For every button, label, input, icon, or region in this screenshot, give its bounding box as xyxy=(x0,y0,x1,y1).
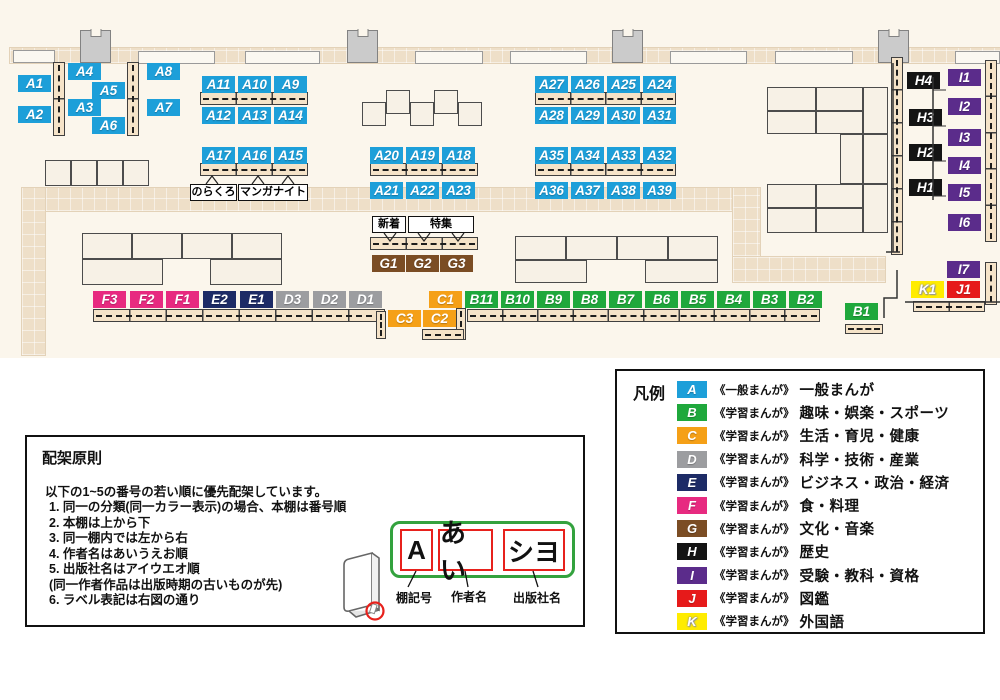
section-label-A23: A23 xyxy=(442,182,475,199)
legend-category: 歴史 xyxy=(800,541,830,562)
legend-category: 受験・教科・資格 xyxy=(800,565,920,586)
section-label-A37: A37 xyxy=(571,182,604,199)
wall-shelf xyxy=(415,51,483,64)
reading-table xyxy=(97,160,123,186)
shelf-code-caption: 棚記号 xyxy=(396,589,432,606)
section-label-D1: D1 xyxy=(349,291,382,308)
section-label-D3: D3 xyxy=(276,291,309,308)
reading-table xyxy=(132,233,182,259)
bookshelf xyxy=(376,311,386,339)
bookshelf xyxy=(535,92,676,105)
legend-row-F: F《学習まんが》食・料理 xyxy=(677,494,950,517)
section-label-A14: A14 xyxy=(274,107,307,124)
section-label-B10: B10 xyxy=(501,291,534,308)
reading-table xyxy=(767,87,816,111)
legend-row-C: C《学習まんが》生活・育児・健康 xyxy=(677,424,950,447)
principle-item: 5. 出版社名はアイウエオ順 (同一作者作品は出版時期の古いものが先) xyxy=(49,562,346,593)
legend-category: 文化・音楽 xyxy=(800,518,875,539)
callout-label: マンガナイト xyxy=(238,184,308,201)
section-label-B2: B2 xyxy=(789,291,822,308)
reading-table xyxy=(434,90,458,114)
label-shelf-code-box: A xyxy=(400,529,433,571)
section-label-C1: C1 xyxy=(429,291,462,308)
legend-row-G: G《学習まんが》文化・音楽 xyxy=(677,517,950,540)
section-label-A15: A15 xyxy=(274,147,307,164)
reading-table xyxy=(182,233,232,259)
reading-table xyxy=(816,111,863,134)
section-label-H2: H2 xyxy=(909,144,942,161)
reading-table xyxy=(668,236,718,260)
walkway xyxy=(733,257,885,282)
bookshelf xyxy=(200,163,308,176)
reading-table xyxy=(362,102,386,126)
reading-table xyxy=(863,134,888,184)
legend-chip-J: J xyxy=(677,590,707,607)
pillar xyxy=(612,30,643,63)
label-publisher-box: シヨ xyxy=(503,529,565,571)
manga-floor-map-page: A1A2A4A5A3A6A8A7A11A10A9A12A13A14A17A16A… xyxy=(0,0,1000,700)
principles-title: 配架原則 xyxy=(42,447,102,468)
section-label-F2: F2 xyxy=(130,291,163,308)
section-label-I7: I7 xyxy=(947,261,980,278)
section-label-A9: A9 xyxy=(274,76,307,93)
legend-chip-I: I xyxy=(677,567,707,584)
floor-map: A1A2A4A5A3A6A8A7A11A10A9A12A13A14A17A16A… xyxy=(0,0,1000,360)
section-label-A17: A17 xyxy=(202,147,235,164)
legend-rows: A《一般まんが》一般まんがB《学習まんが》趣味・娯楽・スポーツC《学習まんが》生… xyxy=(677,378,950,633)
section-label-A38: A38 xyxy=(607,182,640,199)
wall-shelf xyxy=(775,51,853,64)
reading-table xyxy=(617,236,668,260)
section-label-B5: B5 xyxy=(681,291,714,308)
section-label-A6: A6 xyxy=(92,117,125,134)
section-label-G3: G3 xyxy=(440,255,473,272)
legend-category: 図鑑 xyxy=(800,588,830,609)
section-label-A7: A7 xyxy=(147,99,180,116)
principle-item: 2. 本棚は上から下 xyxy=(49,516,346,532)
section-label-A19: A19 xyxy=(406,147,439,164)
section-label-B1: B1 xyxy=(845,303,878,320)
legend-prefix: 《一般まんが》 xyxy=(714,382,795,398)
section-label-H1: H1 xyxy=(909,179,942,196)
bookshelf xyxy=(535,163,676,176)
section-label-A1: A1 xyxy=(18,75,51,92)
section-label-A25: A25 xyxy=(607,76,640,93)
wall-shelf xyxy=(670,51,747,64)
section-label-A16: A16 xyxy=(238,147,271,164)
section-label-I1: I1 xyxy=(948,69,981,86)
principle-item: 4. 作者名はあいうえお順 xyxy=(49,547,346,563)
section-label-B3: B3 xyxy=(753,291,786,308)
legend-prefix: 《学習まんが》 xyxy=(714,521,795,537)
section-label-A24: A24 xyxy=(643,76,676,93)
section-label-A32: A32 xyxy=(643,147,676,164)
reading-table xyxy=(82,233,132,259)
legend-row-B: B《学習まんが》趣味・娯楽・スポーツ xyxy=(677,401,950,424)
bookshelf xyxy=(93,309,385,322)
bookshelf xyxy=(200,92,308,105)
legend-prefix: 《学習まんが》 xyxy=(714,451,795,467)
bookshelf xyxy=(985,60,997,242)
reading-table xyxy=(82,259,163,285)
reading-table xyxy=(232,233,282,259)
walkway xyxy=(22,188,45,355)
section-label-I4: I4 xyxy=(948,157,981,174)
reading-table xyxy=(458,102,482,126)
section-label-A18: A18 xyxy=(442,147,475,164)
legend-row-H: H《学習まんが》歴史 xyxy=(677,540,950,563)
callout-label: 新着 xyxy=(372,216,406,233)
legend-prefix: 《学習まんが》 xyxy=(714,544,795,560)
section-label-B8: B8 xyxy=(573,291,606,308)
legend-row-E: E《学習まんが》ビジネス・政治・経済 xyxy=(677,471,950,494)
section-label-I6: I6 xyxy=(948,214,981,231)
section-label-A21: A21 xyxy=(370,182,403,199)
section-label-A3: A3 xyxy=(68,99,101,116)
legend-row-D: D《学習まんが》科学・技術・産業 xyxy=(677,448,950,471)
section-label-C2: C2 xyxy=(423,310,456,327)
author-caption: 作者名 xyxy=(451,588,487,605)
callout-label: のらくろ xyxy=(190,184,237,201)
bookshelf xyxy=(53,62,65,136)
section-label-A12: A12 xyxy=(202,107,235,124)
reading-table xyxy=(45,160,71,186)
principle-item: 1. 同一の分類(同一カラー表示)の場合、本棚は番号順 xyxy=(49,500,346,516)
legend-category: 科学・技術・産業 xyxy=(800,449,920,470)
book-icon xyxy=(332,549,388,623)
section-label-A31: A31 xyxy=(643,107,676,124)
section-label-A27: A27 xyxy=(535,76,568,93)
publisher-caption: 出版社名 xyxy=(513,589,561,606)
section-label-A36: A36 xyxy=(535,182,568,199)
section-label-E2: E2 xyxy=(203,291,236,308)
pillar xyxy=(347,30,378,63)
legend-chip-D: D xyxy=(677,451,707,468)
legend-prefix: 《学習まんが》 xyxy=(714,474,795,490)
pillar xyxy=(80,30,111,63)
section-label-I3: I3 xyxy=(948,129,981,146)
legend-row-I: I《学習まんが》受験・教科・資格 xyxy=(677,564,950,587)
section-label-F1: F1 xyxy=(166,291,199,308)
legend-category: 生活・育児・健康 xyxy=(800,425,920,446)
legend-chip-B: B xyxy=(677,404,707,421)
reading-table xyxy=(816,208,863,233)
legend-chip-G: G xyxy=(677,520,707,537)
principle-item: 3. 同一棚内では左から右 xyxy=(49,531,346,547)
section-label-H3: H3 xyxy=(909,109,942,126)
section-label-A29: A29 xyxy=(571,107,604,124)
section-label-I5: I5 xyxy=(948,184,981,201)
reading-table xyxy=(123,160,149,186)
legend-category: 一般まんが xyxy=(800,379,875,400)
section-label-K1: K1 xyxy=(911,281,944,298)
principles-box: 配架原則 以下の1~5の番号の若い順に優先配架しています。 1. 同一の分類(同… xyxy=(25,435,585,627)
legend-chip-F: F xyxy=(677,497,707,514)
legend-category: 食・料理 xyxy=(800,495,860,516)
reading-table xyxy=(386,90,410,114)
bookshelf xyxy=(422,329,464,340)
legend-box: 凡例 A《一般まんが》一般まんがB《学習まんが》趣味・娯楽・スポーツC《学習まん… xyxy=(615,369,985,634)
section-label-G1: G1 xyxy=(372,255,405,272)
section-label-B4: B4 xyxy=(717,291,750,308)
section-label-A28: A28 xyxy=(535,107,568,124)
reading-table xyxy=(515,236,566,260)
section-label-A35: A35 xyxy=(535,147,568,164)
principle-item: 6. ラベル表記は右図の通り xyxy=(49,593,346,609)
reading-table xyxy=(767,184,816,208)
section-label-C3: C3 xyxy=(388,310,421,327)
section-label-A5: A5 xyxy=(92,82,125,99)
reading-table xyxy=(210,259,282,285)
legend-prefix: 《学習まんが》 xyxy=(714,405,795,421)
principles-list: 1. 同一の分類(同一カラー表示)の場合、本棚は番号順2. 本棚は上から下3. … xyxy=(49,500,346,609)
section-label-A4: A4 xyxy=(68,63,101,80)
reading-table xyxy=(816,184,863,208)
section-label-D2: D2 xyxy=(313,291,346,308)
section-label-A13: A13 xyxy=(238,107,271,124)
reading-table xyxy=(71,160,97,186)
principles-intro: 以下の1~5の番号の若い順に優先配架しています。 xyxy=(45,481,327,500)
section-label-B9: B9 xyxy=(537,291,570,308)
reading-table xyxy=(410,102,434,126)
section-label-A22: A22 xyxy=(406,182,439,199)
section-label-A34: A34 xyxy=(571,147,604,164)
legend-category: 趣味・娯楽・スポーツ xyxy=(800,402,950,423)
wall-shelf xyxy=(245,51,320,64)
section-label-A20: A20 xyxy=(370,147,403,164)
reading-table xyxy=(863,87,888,134)
bookshelf xyxy=(370,163,478,176)
section-label-F3: F3 xyxy=(93,291,126,308)
section-label-A11: A11 xyxy=(202,76,235,93)
section-label-A8: A8 xyxy=(147,63,180,80)
legend-prefix: 《学習まんが》 xyxy=(714,613,795,629)
legend-prefix: 《学習まんが》 xyxy=(714,590,795,606)
legend-chip-H: H xyxy=(677,543,707,560)
legend-category: ビジネス・政治・経済 xyxy=(800,472,950,493)
section-label-G2: G2 xyxy=(406,255,439,272)
reading-table xyxy=(566,236,617,260)
bookshelf xyxy=(845,324,883,334)
legend-row-A: A《一般まんが》一般まんが xyxy=(677,378,950,401)
section-label-B11: B11 xyxy=(465,291,498,308)
legend-chip-E: E xyxy=(677,474,707,491)
bookshelf xyxy=(467,309,820,322)
wall-shelf xyxy=(13,50,55,63)
wall-shelf xyxy=(510,51,587,64)
section-label-A39: A39 xyxy=(643,182,676,199)
legend-title: 凡例 xyxy=(633,380,665,404)
bookshelf xyxy=(985,262,997,305)
reading-table xyxy=(767,208,816,233)
section-label-A26: A26 xyxy=(571,76,604,93)
bookshelf xyxy=(127,62,139,136)
section-label-E1: E1 xyxy=(240,291,273,308)
label-author-box: あい xyxy=(438,529,493,571)
section-label-H4: H4 xyxy=(907,72,940,89)
section-label-A30: A30 xyxy=(607,107,640,124)
legend-chip-C: C xyxy=(677,427,707,444)
legend-prefix: 《学習まんが》 xyxy=(714,428,795,444)
reading-table xyxy=(767,111,816,134)
legend-category: 外国語 xyxy=(800,611,845,632)
bookshelf xyxy=(370,237,478,250)
bookshelf xyxy=(913,301,985,312)
reading-table xyxy=(840,134,863,184)
bookshelf xyxy=(891,57,903,255)
legend-prefix: 《学習まんが》 xyxy=(714,498,795,514)
reading-table xyxy=(645,260,718,283)
section-label-B7: B7 xyxy=(609,291,642,308)
legend-chip-A: A xyxy=(677,381,707,398)
reading-table xyxy=(816,87,863,111)
callout-label: 特集 xyxy=(408,216,474,233)
section-label-A10: A10 xyxy=(238,76,271,93)
reading-table xyxy=(515,260,587,283)
legend-row-J: J《学習まんが》図鑑 xyxy=(677,587,950,610)
section-label-B6: B6 xyxy=(645,291,678,308)
section-label-I2: I2 xyxy=(948,98,981,115)
section-label-J1: J1 xyxy=(947,281,980,298)
legend-row-K: K《学習まんが》外国語 xyxy=(677,610,950,633)
legend-chip-K: K xyxy=(677,613,707,630)
legend-prefix: 《学習まんが》 xyxy=(714,567,795,583)
section-label-A33: A33 xyxy=(607,147,640,164)
section-label-A2: A2 xyxy=(18,106,51,123)
reading-table xyxy=(863,184,888,233)
